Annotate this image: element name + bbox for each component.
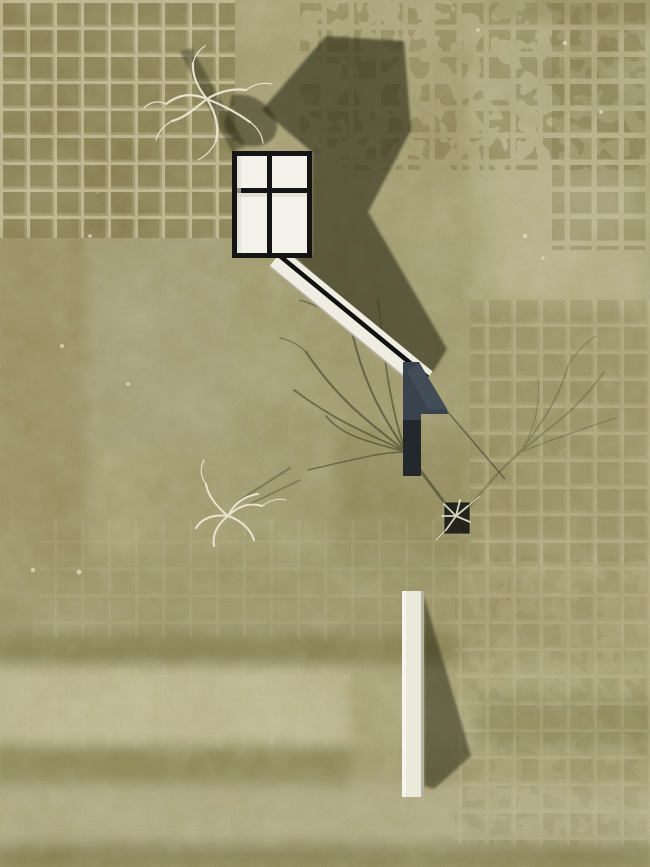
site-plan-canvas: [0, 0, 650, 867]
panel-shade: [272, 193, 307, 197]
freestanding-wall: [402, 591, 424, 797]
roof-panel-tr: [272, 156, 307, 188]
panel-shade: [237, 193, 267, 197]
roof-panel-bl: [237, 193, 267, 253]
roof-panel-tl: [237, 156, 267, 188]
skylight-building: [232, 151, 312, 258]
roof-panel-br: [272, 193, 307, 253]
panel-shade: [237, 156, 241, 253]
aerial-site-render: [0, 0, 650, 867]
